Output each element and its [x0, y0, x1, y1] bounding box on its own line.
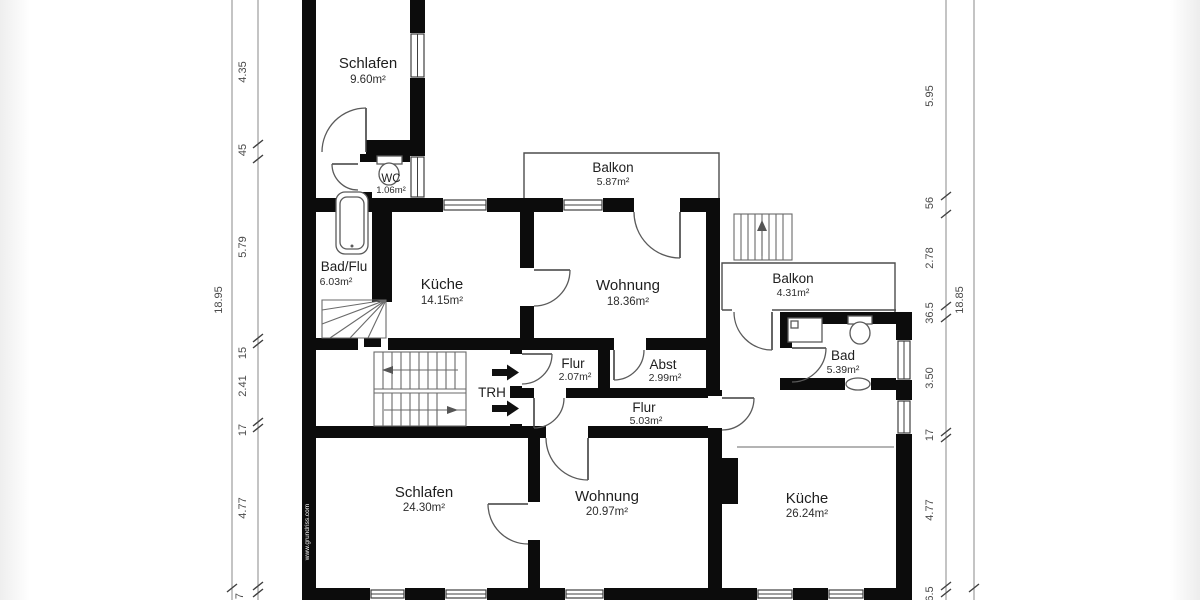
window-icon — [898, 401, 910, 433]
room-area: 5.87m² — [597, 176, 630, 188]
dimension-ticks — [941, 192, 979, 597]
wall-wohnung1-right — [706, 212, 720, 390]
dimension-label: 4.35 — [237, 61, 249, 82]
floor-plan-drawing: Schlafen 9.60m² WC 1.06m² Bad/Flu 6.03m²… — [0, 0, 1200, 600]
dimension-label: 5.95 — [924, 85, 936, 106]
dimension-label: 6.5 — [924, 586, 936, 600]
door-balkon1 — [634, 212, 680, 258]
room-name: Schlafen — [339, 55, 397, 72]
window-icon — [446, 590, 486, 598]
door-kueche2 — [722, 398, 754, 430]
room-area: 2.07m² — [559, 371, 592, 383]
dimension-chain-left: 4.35 45 5.79 15 2.41 17 4.77 7 18.95 — [213, 0, 263, 600]
room-area: 5.39m² — [827, 364, 860, 376]
room-area: 6.03m² — [320, 276, 353, 288]
stair-exterior — [734, 214, 792, 260]
door-schlafen1 — [322, 108, 366, 152]
dimension-label: 5.79 — [237, 236, 249, 257]
room-name: Flur — [561, 356, 585, 371]
room-area: 2.99m² — [649, 372, 682, 384]
window-icon — [829, 590, 863, 598]
sink-icon — [846, 378, 870, 390]
floor-plan-page: Schlafen 9.60m² WC 1.06m² Bad/Flu 6.03m²… — [0, 0, 1200, 600]
dimension-label: 17 — [237, 424, 249, 436]
stair-trh — [374, 352, 466, 426]
window-icon — [444, 200, 486, 210]
room-name: TRH — [478, 385, 506, 400]
room-area: 24.30m² — [403, 502, 445, 514]
door-trh-flur1 — [522, 354, 552, 384]
room-area: 9.60m² — [350, 74, 386, 86]
door-kueche1-wohnung1 — [534, 270, 570, 306]
dimension-label: 7 — [234, 593, 246, 599]
wall-chimney — [722, 458, 738, 504]
room-name: WC — [381, 173, 400, 185]
room-name: Küche — [421, 276, 464, 293]
room-name: Flur — [632, 400, 656, 415]
door-wc — [332, 164, 358, 190]
dimension-label: 2.41 — [237, 375, 249, 396]
dimension-label: 45 — [237, 144, 249, 156]
room-area: 1.06m² — [376, 185, 406, 196]
shower-icon — [788, 318, 822, 342]
wall-schlafen1-bottom — [366, 140, 425, 154]
room-area: 18.36m² — [607, 296, 649, 308]
room-name: Küche — [786, 490, 829, 507]
wall-corridor-bottom — [302, 426, 720, 438]
room-area: 26.24m² — [786, 508, 828, 520]
stair-direction-arrow-icon — [757, 220, 767, 231]
door-schlafen2 — [488, 504, 528, 544]
door-wohnung2 — [546, 438, 588, 480]
dimension-label: 4.77 — [237, 497, 249, 518]
room-name: Wohnung — [575, 488, 639, 505]
room-name: Wohnung — [596, 277, 660, 294]
dimension-label-total: 18.85 — [954, 286, 966, 314]
room-name: Balkon — [772, 271, 813, 286]
window-icon — [566, 590, 603, 598]
window-icon — [758, 590, 792, 598]
flue-symbol — [364, 338, 381, 347]
dimension-label: 4.77 — [924, 499, 936, 520]
watermark: www.grundriss.com — [304, 504, 311, 561]
room-area: 5.03m² — [630, 415, 663, 427]
room-area: 20.97m² — [586, 506, 628, 518]
room-name: Balkon — [592, 160, 633, 175]
wall-flur-abst-divider — [598, 350, 610, 388]
room-area: 14.15m² — [421, 295, 463, 307]
wall-bad-bottom — [780, 378, 896, 390]
stair-winder — [322, 300, 386, 338]
dimension-label: 15 — [237, 347, 249, 359]
window-icon — [371, 590, 404, 598]
stair-direction-arrow-icon — [382, 366, 393, 374]
room-name: Bad/Flu — [321, 259, 368, 274]
room-name: Bad — [831, 348, 855, 363]
stair-direction-arrow-icon — [447, 406, 458, 414]
door-bad2 — [792, 348, 826, 382]
window-icon — [898, 341, 910, 379]
window-icon — [411, 157, 424, 197]
door-flur1-flur2 — [534, 398, 564, 428]
dimension-label: 36.5 — [924, 302, 936, 323]
dimension-label: 3.50 — [924, 367, 936, 388]
window-icon — [411, 34, 424, 77]
wall-badflu-kueche1 — [372, 212, 392, 302]
bathtub-icon — [336, 192, 368, 254]
dimension-chain-right: 5.95 56 2.78 36.5 3.50 17 4.77 6.5 18.85 — [924, 0, 979, 600]
room-area: 4.31m² — [777, 287, 810, 299]
toilet-icon — [848, 316, 872, 344]
dimension-label: 2.78 — [924, 247, 936, 268]
room-name: Abst — [649, 357, 676, 372]
room-labels: Schlafen 9.60m² WC 1.06m² Bad/Flu 6.03m²… — [320, 55, 860, 520]
dimension-label: 56 — [924, 197, 936, 209]
door-balkon2 — [734, 312, 772, 350]
dimension-label: 17 — [924, 429, 936, 441]
window-icon — [564, 200, 602, 210]
door-abst — [614, 350, 644, 380]
dimension-label-total: 18.95 — [213, 286, 225, 314]
room-name: Schlafen — [395, 484, 453, 501]
